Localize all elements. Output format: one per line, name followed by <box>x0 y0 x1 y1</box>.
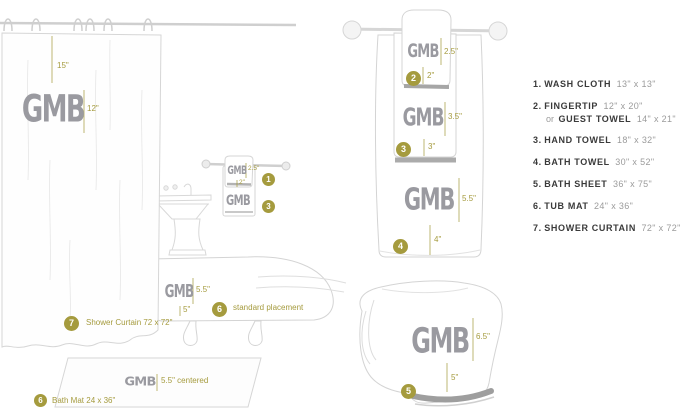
pedestal-sink-drawing <box>156 184 211 255</box>
legend-name: WASH CLOTH <box>544 79 611 89</box>
bath-sheet-side-measure: 6.5" <box>476 333 490 341</box>
shower-curtain-label: Shower Curtain 72 x 72" <box>86 319 172 327</box>
legend-name: TUB MAT <box>544 201 588 211</box>
legend-name: BATH SHEET <box>544 179 607 189</box>
washcloth-bottom-measure: 2" <box>239 180 245 187</box>
wall-hand-towel-monogram: GMB <box>226 195 250 210</box>
legend-item-hand-towel: 3. HAND TOWEL 18" x 32" <box>533 136 656 145</box>
legend-size: 13" x 13" <box>617 79 656 89</box>
badge-fingertip: 2 <box>406 71 421 86</box>
legend-name: GUEST TOWEL <box>559 114 632 124</box>
legend-name: BATH TOWEL <box>544 157 609 167</box>
bath-mat-measure: 5.5" centered <box>161 377 208 385</box>
legend-size: 24" x 36" <box>594 201 633 211</box>
legend-item-fingertip: 2. FINGERTIP 12" x 20" <box>533 102 643 111</box>
legend-name: HAND TOWEL <box>544 135 611 145</box>
badge-wall-hand-towel: 3 <box>262 200 275 213</box>
legend-name: SHOWER CURTAIN <box>544 223 636 233</box>
tub-mat-monogram: GMB <box>165 282 194 299</box>
wall-washcloth-monogram: GMB <box>227 165 246 177</box>
fingertip-bottom-measure: 2" <box>427 72 434 80</box>
legend-number: 6. <box>533 201 542 211</box>
bath-towel-bottom-measure: 4" <box>434 236 441 244</box>
monogram-placement-guide: GMB GMB GMB GMB GMB GMB GMB GMB GMB 15" … <box>0 0 700 420</box>
legend-size: 30" x 52" <box>615 157 654 167</box>
legend-number: 7. <box>533 223 542 233</box>
legend-number: 4. <box>533 157 542 167</box>
bath-sheet-monogram: GMB <box>411 324 469 359</box>
legend-number: 1. <box>533 79 542 89</box>
legend-item-guest-towel: or GUEST TOWEL 14" x 21" <box>546 115 676 124</box>
washcloth-side-measure: 2.5" <box>248 166 259 173</box>
hand-towel-monogram: GMB <box>403 107 444 132</box>
badge-tub-mat: 6 <box>212 302 227 317</box>
bath-towel-monogram: GMB <box>404 185 454 215</box>
bath-mat-label: Bath Mat 24 x 36" <box>52 397 115 405</box>
badge-hand-towel: 3 <box>396 142 411 157</box>
tub-bottom-measure: 5" <box>183 306 190 314</box>
badge-bath-towel: 4 <box>393 239 408 254</box>
legend-item-shower-curtain: 7. SHOWER CURTAIN 72" x 72" <box>533 224 681 233</box>
badge-washcloth: 1 <box>262 173 275 186</box>
legend-size: 18" x 32" <box>617 135 656 145</box>
hand-towel-side-measure: 3.5" <box>448 113 462 121</box>
legend-number: 2. <box>533 101 542 111</box>
bath-sheet-bottom-measure: 5" <box>451 374 458 382</box>
badge-bath-mat: 6 <box>34 394 47 407</box>
standard-placement-label: standard placement <box>233 304 303 312</box>
legend-number: 5. <box>533 179 542 189</box>
curtain-side-measure: 12" <box>87 105 99 113</box>
bath-towel-side-measure: 5.5" <box>462 195 476 203</box>
legend-or: or <box>546 114 554 124</box>
hand-towel-bottom-measure: 3" <box>428 143 435 151</box>
shower-curtain-monogram: GMB <box>22 91 84 129</box>
legend-item-tub-mat: 6. TUB MAT 24" x 36" <box>533 202 633 211</box>
legend-item-bath-towel: 4. BATH TOWEL 30" x 52" <box>533 158 654 167</box>
legend-item-wash-cloth: 1. WASH CLOTH 13" x 13" <box>533 80 656 89</box>
shower-rod-drawing <box>0 19 296 31</box>
fingertip-monogram: GMB <box>407 43 438 62</box>
legend-size: 12" x 20" <box>603 101 642 111</box>
badge-shower-curtain: 7 <box>64 316 79 331</box>
tub-side-measure: 5.5" <box>196 286 210 294</box>
curtain-drop-measure: 15" <box>57 62 69 70</box>
fingertip-side-measure: 2.5" <box>444 48 458 56</box>
shower-curtain-drawing <box>2 33 161 347</box>
bath-mat-monogram: GMB <box>124 376 155 388</box>
badge-bath-sheet: 5 <box>401 384 416 399</box>
legend-size: 36" x 75" <box>613 179 652 189</box>
legend-number: 3. <box>533 135 542 145</box>
legend-size: 14" x 21" <box>637 114 676 124</box>
legend-item-bath-sheet: 5. BATH SHEET 36" x 75" <box>533 180 652 189</box>
legend-name: FINGERTIP <box>544 101 598 111</box>
legend-size: 72" x 72" <box>641 223 680 233</box>
